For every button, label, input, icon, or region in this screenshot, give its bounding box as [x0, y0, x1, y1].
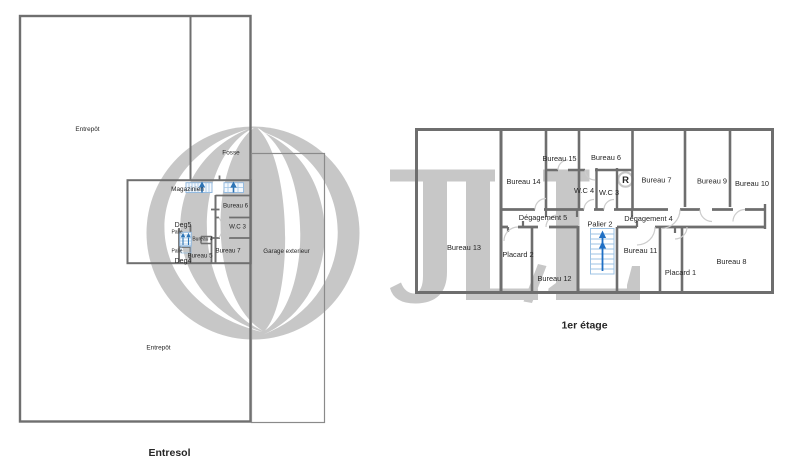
svg-text:Entrepôt: Entrepôt	[75, 126, 99, 133]
svg-text:Bureau 15: Bureau 15	[542, 154, 576, 163]
svg-text:R: R	[622, 175, 629, 186]
svg-text:Entresol: Entresol	[148, 447, 190, 459]
svg-text:Palie: Palie	[171, 230, 182, 236]
svg-text:Bureau 6: Bureau 6	[591, 153, 621, 162]
svg-text:Bureau 8: Bureau 8	[717, 257, 747, 266]
svg-text:W.C 3: W.C 3	[229, 224, 246, 231]
svg-text:W.C 3: W.C 3	[599, 188, 619, 197]
svg-text:Bureau 7: Bureau 7	[215, 248, 241, 255]
svg-text:1er étage: 1er étage	[561, 320, 607, 332]
svg-text:Bureau 10: Bureau 10	[735, 179, 769, 188]
svg-text:Dégagement 5: Dégagement 5	[519, 213, 567, 222]
svg-text:Bureau 6: Bureau 6	[223, 203, 249, 210]
svg-text:Bureau 4: Bureau 4	[192, 237, 213, 243]
svg-text:Bureau 13: Bureau 13	[447, 243, 481, 252]
svg-text:Bureau 9: Bureau 9	[697, 177, 727, 186]
svg-text:Bureau 12: Bureau 12	[537, 274, 571, 283]
svg-text:Bureau 7: Bureau 7	[642, 176, 672, 185]
svg-text:Palier 2: Palier 2	[587, 220, 612, 229]
svg-text:Magazinien: Magazinien	[171, 186, 204, 193]
svg-text:Dégagement 4: Dégagement 4	[624, 214, 672, 223]
svg-text:Bureau 11: Bureau 11	[624, 246, 658, 255]
svg-text:Placard 1: Placard 1	[665, 268, 696, 277]
svg-text:Garage exterieur: Garage exterieur	[263, 248, 309, 255]
svg-text:Bureau 14: Bureau 14	[506, 177, 540, 186]
svg-text:Deg5: Deg5	[175, 222, 192, 229]
svg-text:Entrepôt: Entrepôt	[146, 345, 170, 352]
svg-text:Deg4: Deg4	[175, 258, 192, 265]
svg-text:Palie: Palie	[171, 249, 182, 255]
svg-text:Fosse: Fosse	[222, 150, 240, 157]
svg-text:W.C 4: W.C 4	[574, 186, 594, 195]
svg-text:Placard 2: Placard 2	[502, 250, 533, 259]
